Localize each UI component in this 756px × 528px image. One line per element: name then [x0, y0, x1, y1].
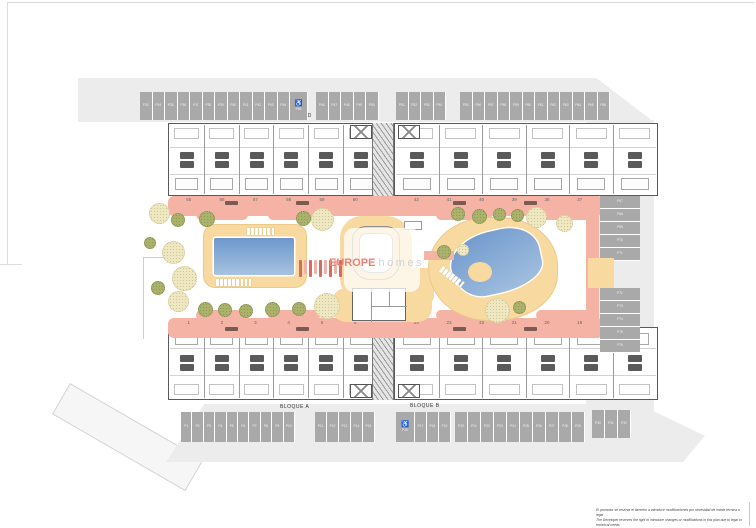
tree-icon — [168, 291, 189, 312]
tree-icon — [171, 213, 185, 227]
tree-icon — [485, 298, 510, 323]
tree-icon — [457, 244, 469, 256]
tree-icon — [437, 245, 451, 259]
disclaimer-line-es: El promotor se reserva el derecho a intr… — [596, 508, 744, 518]
tree-icon — [451, 207, 465, 221]
site-plan: BLOQUE D BLOQUE C BLOQUE A BLOQUE B 5556… — [0, 0, 756, 528]
tree-icon — [493, 208, 506, 221]
tree-icon — [149, 203, 170, 224]
tree-icon — [265, 302, 280, 317]
tree-icon — [511, 209, 524, 222]
tree-icon — [513, 301, 526, 314]
tree-icon — [199, 211, 215, 227]
tree-icon — [311, 208, 334, 231]
watermark-logo: EUROPEhomes — [329, 257, 424, 269]
tree-icon — [296, 211, 311, 226]
tree-icon — [292, 302, 306, 316]
disclaimer: El promotor se reserva el derecho a intr… — [596, 508, 744, 528]
tree-icon — [556, 215, 573, 232]
disclaimer-line-en: The Developer reserves the right to intr… — [596, 518, 744, 528]
tree-icon — [239, 304, 253, 318]
watermark-suffix: homes — [378, 257, 424, 269]
tree-icon — [218, 303, 232, 317]
tree-icon — [526, 207, 547, 228]
tree-icon — [172, 266, 197, 291]
tree-icon — [198, 302, 213, 317]
tree-icon — [314, 293, 340, 319]
tree-icon — [144, 237, 156, 249]
watermark-brand: EUROPE — [329, 257, 375, 269]
disclaimer-separator — [749, 502, 750, 526]
tree-icon — [162, 241, 185, 264]
tree-icon — [151, 281, 165, 295]
tree-icon — [472, 209, 487, 224]
